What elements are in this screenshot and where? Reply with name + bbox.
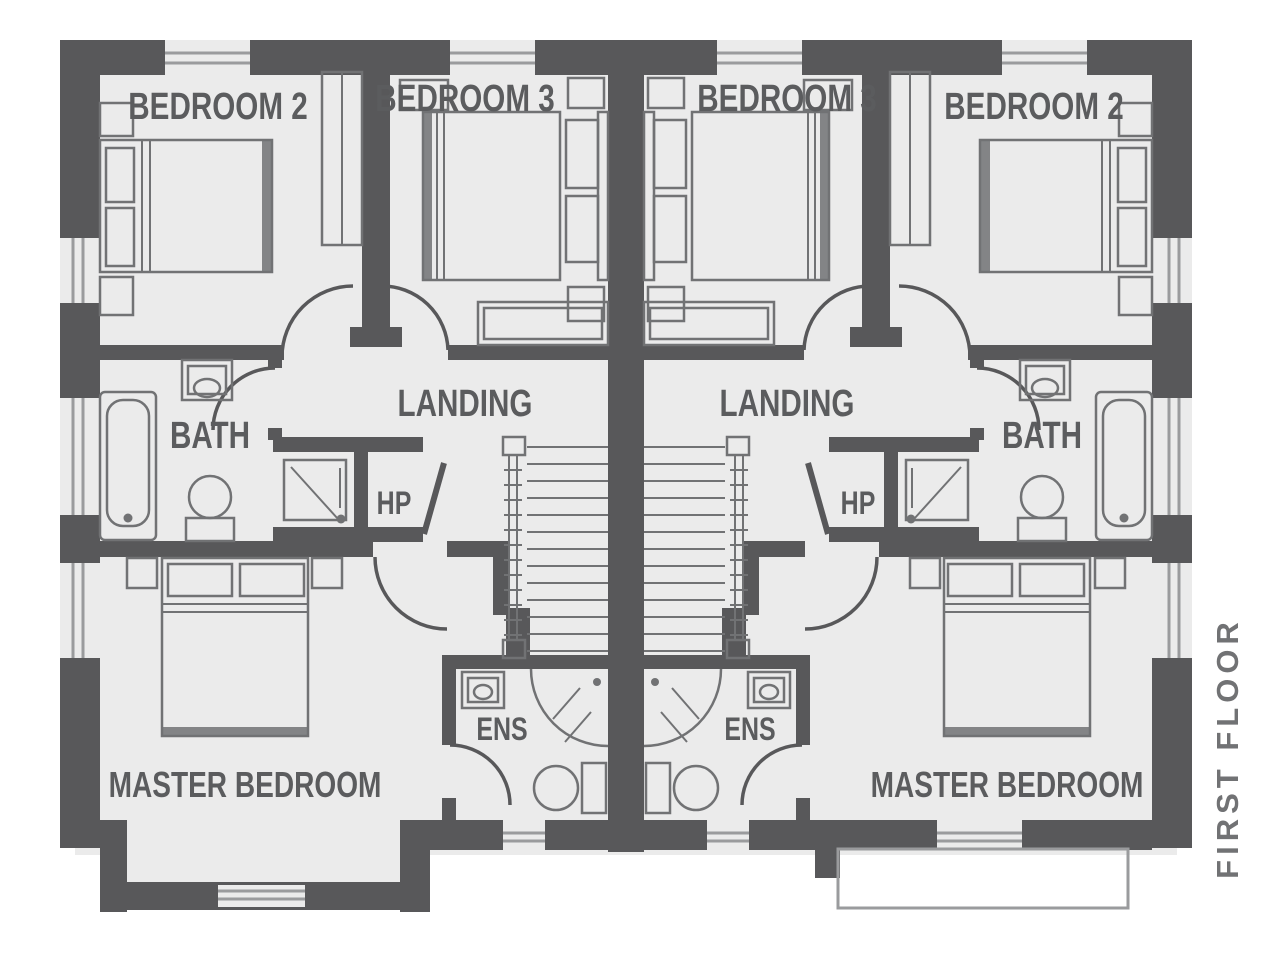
room-label-ens-left: ENS	[476, 712, 527, 748]
room-label-bedroom2-right: BEDROOM 2	[944, 86, 1123, 128]
roof-outline	[838, 849, 1128, 908]
window	[937, 822, 1022, 848]
room-label-bedroom3-right: BEDROOM 3	[697, 78, 876, 120]
room-label-bath-left: BATH	[170, 415, 250, 457]
floor-title: FIRST FLOOR	[1210, 617, 1245, 879]
room-label-hp-left: HP	[377, 486, 412, 522]
room-label-bath-right: BATH	[1002, 415, 1082, 457]
floor-plan-drawing: BEDROOM 2 BEDROOM 3 BEDROOM 3 BEDROOM 2 …	[0, 0, 1280, 971]
window	[218, 885, 305, 907]
room-label-hp-right: HP	[841, 486, 876, 522]
room-label-landing-left: LANDING	[398, 383, 533, 425]
room-label-master-right: MASTER BEDROOM	[871, 765, 1144, 805]
room-label-master-left: MASTER BEDROOM	[109, 765, 382, 805]
room-label-ens-right: ENS	[724, 712, 775, 748]
room-label-bedroom3-left: BEDROOM 3	[375, 78, 554, 120]
room-label-landing-right: LANDING	[720, 383, 855, 425]
bottom-wall-right	[815, 820, 1152, 908]
room-label-bedroom2-left: BEDROOM 2	[128, 86, 307, 128]
floor-plan-page: BEDROOM 2 BEDROOM 3 BEDROOM 3 BEDROOM 2 …	[0, 0, 1280, 971]
